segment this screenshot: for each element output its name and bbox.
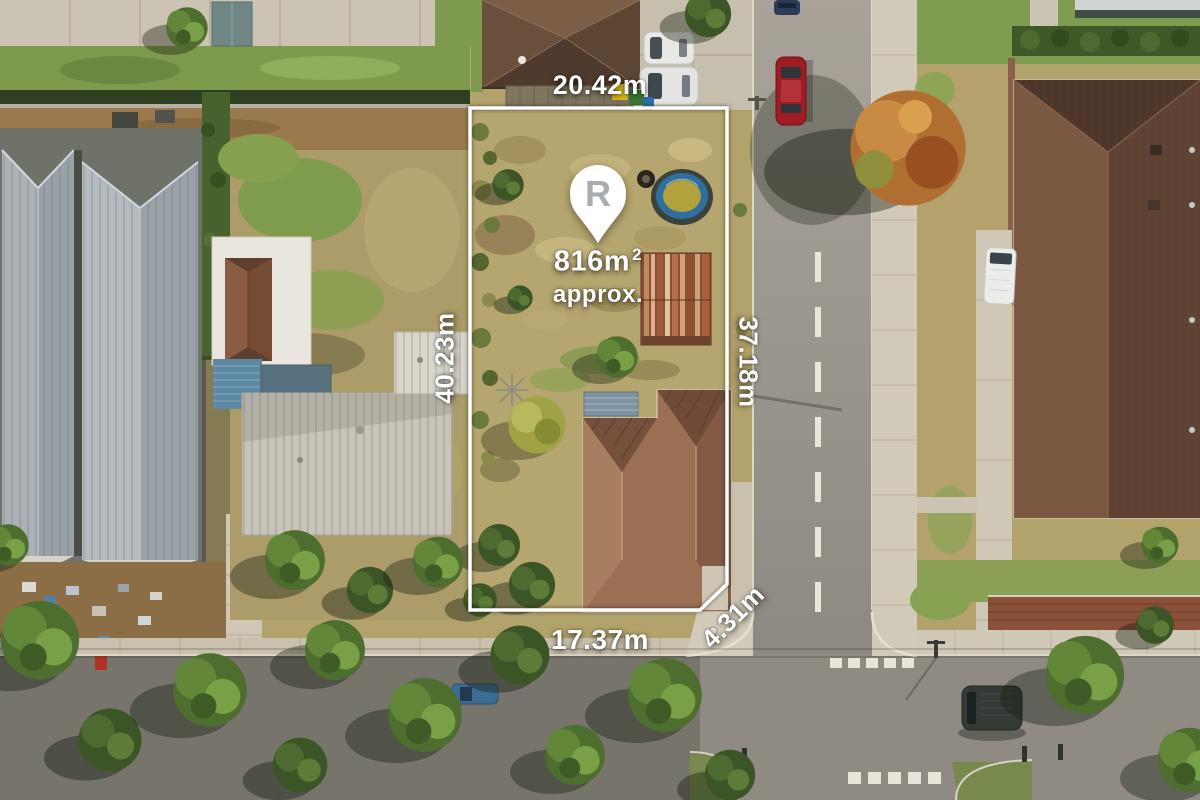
area-qualifier: approx. — [553, 282, 643, 308]
area-value: 816m — [554, 246, 630, 278]
agency-logo: R — [585, 173, 611, 214]
street-vertical — [748, 0, 874, 672]
measurement-top-frontage: 20.42m — [553, 70, 648, 101]
subject-house — [583, 390, 731, 612]
measurement-left-side: 40.23m — [430, 312, 461, 403]
rusty-shed — [641, 253, 711, 345]
parked-red-car — [776, 57, 813, 125]
parked-white-van — [984, 247, 1017, 304]
aerial-property-photo: R 20.42m 40.23m 37.18m 4.31m 17.37m 816m… — [0, 0, 1200, 800]
measurement-right-side: 37.18m — [733, 316, 764, 407]
area-superscript: 2 — [632, 245, 642, 264]
aerial-photo-svg: R — [0, 0, 1200, 800]
swimming-pool — [651, 169, 713, 225]
area-value-line: 816m2 — [553, 246, 643, 279]
land-area-label: 816m2 approx. — [553, 246, 643, 308]
measurement-bottom-frontage: 17.37m — [551, 624, 649, 656]
east-house — [984, 80, 1200, 518]
